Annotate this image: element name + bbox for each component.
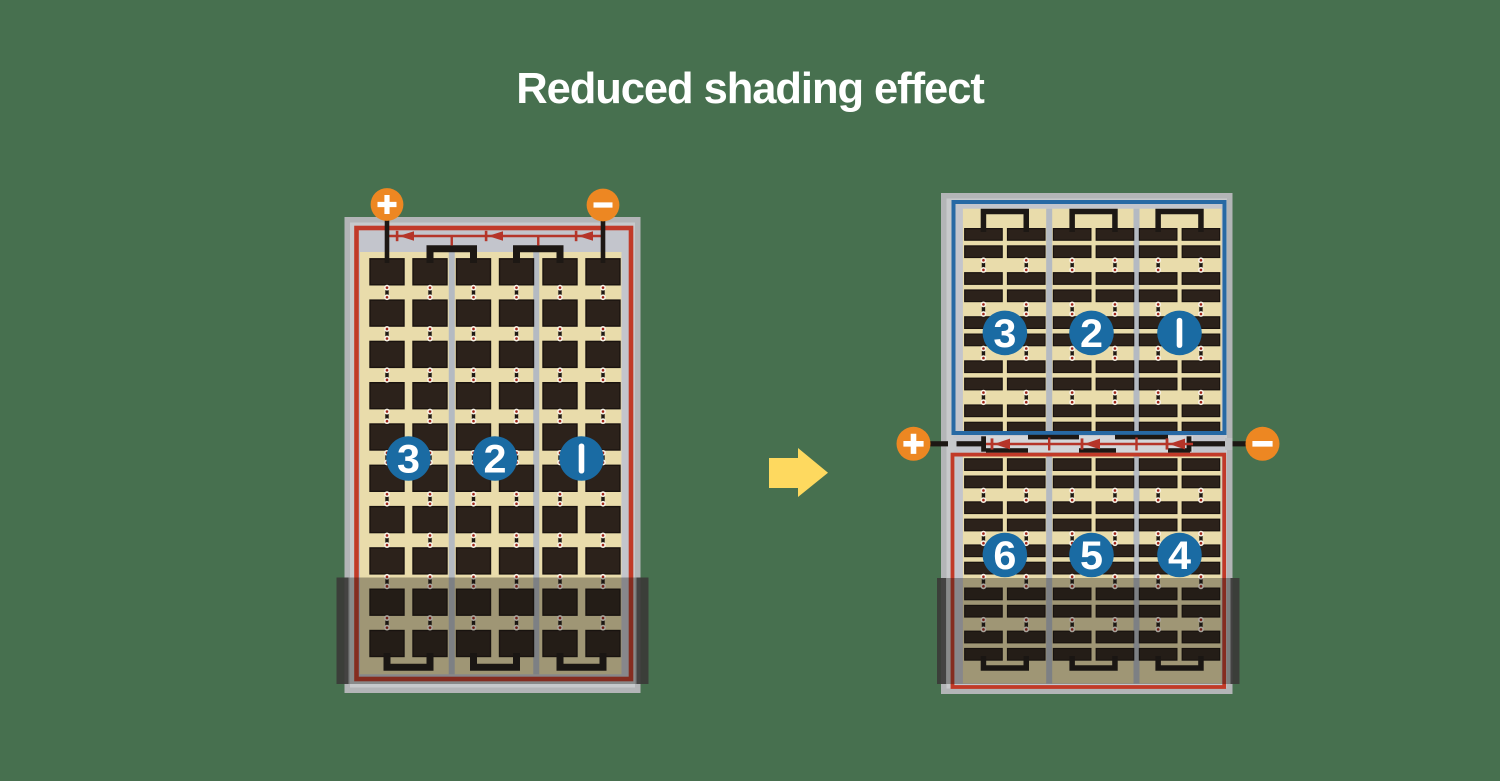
svg-text:2: 2	[1080, 312, 1103, 356]
svg-text:6: 6	[993, 534, 1016, 578]
svg-text:3: 3	[397, 438, 420, 482]
svg-text:4: 4	[1168, 534, 1192, 578]
svg-text:2: 2	[484, 438, 507, 482]
svg-text:5: 5	[1080, 534, 1103, 578]
svg-text:3: 3	[993, 312, 1016, 356]
